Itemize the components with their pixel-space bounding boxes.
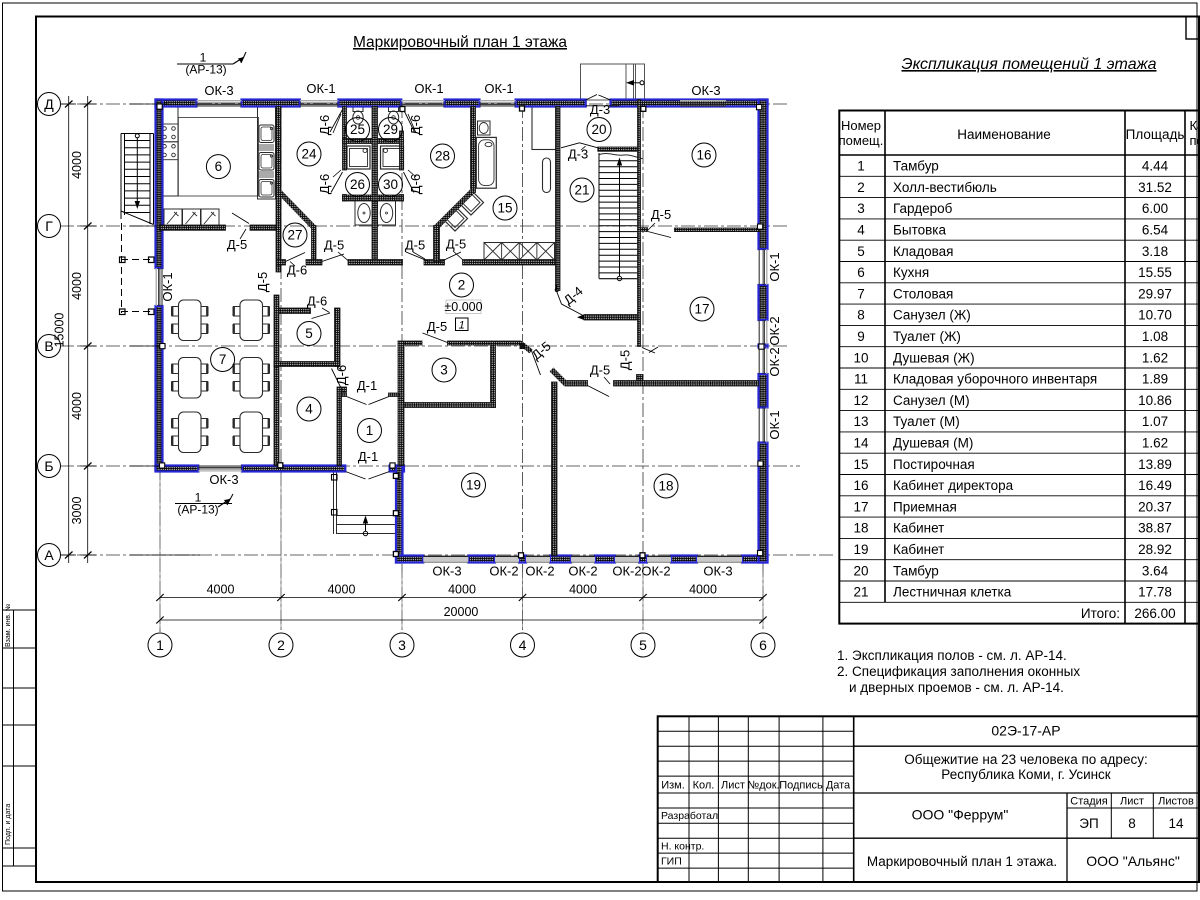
svg-text:2. Спецификация заполнения око: 2. Спецификация заполнения оконных (837, 664, 1080, 679)
svg-text:Подп. и дата: Подп. и дата (5, 804, 12, 845)
svg-text:6: 6 (215, 159, 223, 174)
svg-text:19: 19 (466, 478, 481, 493)
svg-text:Дата: Дата (826, 780, 851, 792)
svg-text:18: 18 (658, 479, 673, 494)
svg-text:Лестничная клетка: Лестничная клетка (893, 585, 1012, 600)
svg-text:Тамбур: Тамбур (893, 159, 939, 174)
svg-text:1.62: 1.62 (1142, 436, 1168, 451)
svg-text:15: 15 (853, 457, 868, 472)
svg-text:21: 21 (574, 183, 589, 198)
svg-text:02Э-17-АР: 02Э-17-АР (991, 723, 1060, 739)
svg-text:(АР-13): (АР-13) (177, 503, 218, 517)
svg-text:ОК-1: ОК-1 (484, 81, 513, 96)
svg-text:ОК-3: ОК-3 (209, 472, 238, 487)
svg-text:4000: 4000 (569, 583, 597, 597)
svg-text:Столовая: Столовая (893, 286, 953, 301)
svg-text:6.54: 6.54 (1142, 223, 1169, 238)
svg-text:20: 20 (853, 563, 868, 578)
svg-text:Подпись: Подпись (779, 780, 823, 792)
svg-text:1: 1 (156, 637, 164, 653)
svg-text:Д-5: Д-5 (618, 350, 633, 370)
svg-text:11: 11 (854, 372, 868, 387)
svg-text:7: 7 (219, 352, 227, 367)
svg-text:1. Экспликация полов - см. л.: 1. Экспликация полов - см. л. АР-14. (837, 648, 1067, 663)
svg-text:8: 8 (1128, 816, 1136, 831)
svg-text:19: 19 (853, 542, 868, 557)
svg-text:Кол.: Кол. (693, 780, 715, 792)
svg-text:Д-6: Д-6 (307, 294, 327, 309)
svg-text:1: 1 (857, 159, 865, 174)
svg-text:12: 12 (853, 393, 868, 408)
svg-text:Площадь: Площадь (1126, 127, 1185, 142)
svg-text:Итого:: Итого: (1081, 606, 1120, 621)
svg-text:30: 30 (383, 177, 398, 192)
svg-text:25: 25 (350, 122, 365, 137)
svg-text:5: 5 (305, 326, 313, 341)
svg-text:38.87: 38.87 (1138, 521, 1172, 536)
svg-text:Туалет (М): Туалет (М) (893, 414, 960, 429)
svg-text:1: 1 (459, 319, 465, 331)
svg-text:Лист: Лист (1120, 796, 1144, 808)
svg-text:Листов: Листов (1158, 796, 1194, 808)
svg-text:10.70: 10.70 (1138, 308, 1172, 323)
svg-text:Кабинет: Кабинет (893, 542, 944, 557)
svg-text:Д-5: Д-5 (427, 319, 447, 334)
svg-text:1.62: 1.62 (1142, 350, 1168, 365)
svg-text:3: 3 (440, 363, 448, 378)
svg-text:1.89: 1.89 (1142, 372, 1168, 387)
svg-text:1.08: 1.08 (1142, 329, 1168, 344)
svg-text:Б: Б (44, 458, 53, 474)
svg-text:13: 13 (853, 414, 868, 429)
svg-text:В: В (44, 338, 53, 354)
svg-text:ОК-1: ОК-1 (414, 81, 443, 96)
svg-text:Маркировочный план 1 этажа: Маркировочный план 1 этажа (353, 34, 567, 51)
svg-text:1.07: 1.07 (1142, 414, 1168, 429)
svg-text:4000: 4000 (328, 583, 356, 597)
svg-text:5: 5 (857, 244, 865, 259)
svg-text:Д-5: Д-5 (446, 237, 466, 252)
svg-text:ОК-1: ОК-1 (160, 272, 175, 301)
svg-text:Д-5: Д-5 (651, 207, 671, 222)
svg-text:4.44: 4.44 (1142, 159, 1169, 174)
svg-text:Кладовая уборочного инвентаря: Кладовая уборочного инвентаря (893, 372, 1097, 387)
svg-text:Душевая (М): Душевая (М) (893, 436, 973, 451)
svg-text:Кухня: Кухня (893, 265, 929, 280)
svg-text:±0.000: ±0.000 (444, 300, 482, 314)
svg-text:Республика Коми, г. Усинск: Республика Коми, г. Усинск (941, 767, 1111, 782)
svg-text:24: 24 (301, 147, 317, 162)
svg-text:Кабинет директора: Кабинет директора (893, 478, 1014, 493)
svg-text:10: 10 (853, 350, 868, 365)
svg-text:и дверных проемов - см. л. АР-: и дверных проемов - см. л. АР-14. (849, 680, 1064, 695)
svg-text:2: 2 (277, 637, 285, 653)
svg-text:А: А (44, 547, 54, 563)
svg-text:4000: 4000 (207, 583, 235, 597)
svg-text:27: 27 (287, 228, 302, 243)
svg-text:17.78: 17.78 (1138, 585, 1172, 600)
svg-text:14: 14 (1168, 816, 1184, 831)
svg-text:3: 3 (398, 637, 406, 653)
svg-text:ОК-1: ОК-1 (767, 252, 782, 281)
svg-text:Номер: Номер (841, 118, 881, 133)
svg-text:4000: 4000 (70, 272, 84, 300)
svg-text:16: 16 (696, 148, 711, 163)
svg-text:20: 20 (591, 122, 606, 137)
svg-text:Лист: Лист (721, 780, 745, 792)
svg-text:Разработал: Разработал (661, 810, 718, 822)
svg-text:16.49: 16.49 (1138, 478, 1172, 493)
svg-text:15.55: 15.55 (1138, 265, 1172, 280)
svg-text:Изм.: Изм. (661, 780, 685, 792)
svg-text:ЭП: ЭП (1079, 816, 1098, 831)
svg-text:3.18: 3.18 (1142, 244, 1168, 259)
svg-text:4000: 4000 (448, 583, 476, 597)
svg-text:ОК-2: ОК-2 (612, 564, 641, 579)
svg-text:6: 6 (759, 637, 767, 653)
svg-text:ОК-2: ОК-2 (767, 316, 782, 345)
svg-text:4: 4 (519, 637, 527, 653)
svg-text:Бытовка: Бытовка (893, 223, 946, 238)
svg-text:помещ.: помещ. (839, 133, 884, 148)
svg-text:3000: 3000 (70, 497, 84, 525)
svg-text:(АР-13): (АР-13) (185, 63, 226, 77)
svg-text:21: 21 (853, 585, 868, 600)
svg-text:20.37: 20.37 (1138, 499, 1172, 514)
svg-text:Кладовая: Кладовая (893, 244, 953, 259)
svg-text:Д-6: Д-6 (317, 174, 332, 194)
svg-text:Холл-вестибюль: Холл-вестибюль (893, 180, 997, 195)
svg-text:17: 17 (853, 499, 868, 514)
svg-text:7: 7 (857, 286, 865, 301)
svg-text:2: 2 (857, 180, 865, 195)
svg-text:Д-1: Д-1 (358, 449, 378, 464)
svg-text:Санузел (Ж): Санузел (Ж) (893, 308, 971, 323)
svg-text:Г: Г (45, 218, 53, 234)
svg-text:ОК-2: ОК-2 (641, 564, 670, 579)
svg-text:Д-5: Д-5 (590, 363, 610, 378)
svg-text:Кабинет: Кабинет (893, 521, 944, 536)
svg-text:Д-6: Д-6 (334, 365, 349, 385)
svg-text:ОК-1: ОК-1 (767, 410, 782, 439)
svg-text:31.52: 31.52 (1138, 180, 1172, 195)
svg-text:1: 1 (366, 423, 374, 438)
svg-text:6: 6 (857, 265, 865, 280)
svg-text:14: 14 (853, 436, 869, 451)
svg-text:Туалет (Ж): Туалет (Ж) (893, 329, 961, 344)
svg-text:Д-1: Д-1 (357, 378, 377, 393)
svg-text:Санузел (М): Санузел (М) (893, 393, 970, 408)
svg-text:8: 8 (857, 308, 865, 323)
svg-text:Ка: Ка (1190, 118, 1200, 133)
svg-text:9: 9 (857, 329, 865, 344)
svg-text:4: 4 (305, 402, 313, 417)
svg-text:4000: 4000 (689, 583, 717, 597)
svg-text:10.86: 10.86 (1138, 393, 1172, 408)
svg-text:по: по (1190, 133, 1200, 148)
svg-text:ОК-3: ОК-3 (691, 83, 720, 98)
svg-text:ОК-2: ОК-2 (568, 564, 597, 579)
svg-text:ОК-2: ОК-2 (489, 564, 518, 579)
svg-text:Д-6: Д-6 (317, 115, 332, 135)
svg-text:4: 4 (857, 223, 865, 238)
svg-text:29.97: 29.97 (1138, 286, 1172, 301)
svg-text:ОК-1: ОК-1 (306, 81, 335, 96)
svg-text:Постирочная: Постирочная (893, 457, 975, 472)
svg-text:ОК-2: ОК-2 (767, 347, 782, 376)
svg-text:Гардероб: Гардероб (893, 201, 953, 216)
svg-text:ООО "Альянс": ООО "Альянс" (1086, 853, 1180, 869)
svg-text:Общежитие на 23 человека по ад: Общежитие на 23 человека по адресу: (904, 752, 1147, 767)
svg-text:ГИП: ГИП (661, 856, 682, 868)
svg-text:16: 16 (853, 478, 868, 493)
svg-text:26: 26 (350, 177, 365, 192)
svg-text:Взам. инв. №: Взам. инв. № (5, 604, 12, 647)
svg-text:266.00: 266.00 (1134, 606, 1175, 621)
svg-text:6.00: 6.00 (1142, 201, 1168, 216)
svg-text:Д-5: Д-5 (227, 237, 247, 252)
svg-text:Д-3: Д-3 (568, 147, 588, 162)
svg-text:4000: 4000 (70, 151, 84, 179)
svg-text:3.64: 3.64 (1142, 563, 1169, 578)
svg-text:3: 3 (857, 201, 865, 216)
svg-text:Тамбур: Тамбур (893, 563, 939, 578)
svg-text:Д-5: Д-5 (405, 238, 425, 253)
svg-text:Стадия: Стадия (1070, 796, 1108, 808)
svg-text:4000: 4000 (70, 392, 84, 420)
svg-text:Д-5: Д-5 (255, 272, 270, 292)
svg-text:18: 18 (853, 521, 868, 536)
svg-text:ОК-3: ОК-3 (703, 564, 732, 579)
svg-text:ОК-3: ОК-3 (432, 564, 461, 579)
svg-text:5: 5 (639, 637, 647, 653)
svg-text:Д-3: Д-3 (590, 102, 610, 117)
svg-text:Д: Д (44, 96, 54, 112)
svg-text:2: 2 (458, 278, 466, 293)
svg-text:Наименование: Наименование (957, 127, 1051, 142)
svg-text:ОК-2: ОК-2 (525, 564, 554, 579)
svg-text:ООО "Феррум": ООО "Феррум" (912, 807, 1009, 823)
svg-text:17: 17 (694, 302, 709, 317)
svg-text:№док.: №док. (747, 780, 779, 792)
svg-text:Д-5: Д-5 (324, 238, 344, 253)
svg-text:ОК-3: ОК-3 (204, 83, 233, 98)
svg-text:Душевая (Ж): Душевая (Ж) (893, 350, 975, 365)
svg-text:Маркировочный план 1 этажа.: Маркировочный план 1 этажа. (867, 854, 1057, 869)
svg-text:Н. контр.: Н. контр. (661, 841, 704, 853)
svg-text:13.89: 13.89 (1138, 457, 1172, 472)
svg-text:Приемная: Приемная (893, 499, 957, 514)
svg-text:29: 29 (383, 122, 398, 137)
svg-text:Д-6: Д-6 (287, 263, 307, 278)
svg-text:28: 28 (435, 149, 450, 164)
svg-text:28.92: 28.92 (1138, 542, 1172, 557)
svg-text:20000: 20000 (444, 605, 479, 619)
svg-text:Экспликация помещений 1 этажа: Экспликация помещений 1 этажа (902, 56, 1157, 73)
svg-text:15: 15 (497, 201, 512, 216)
